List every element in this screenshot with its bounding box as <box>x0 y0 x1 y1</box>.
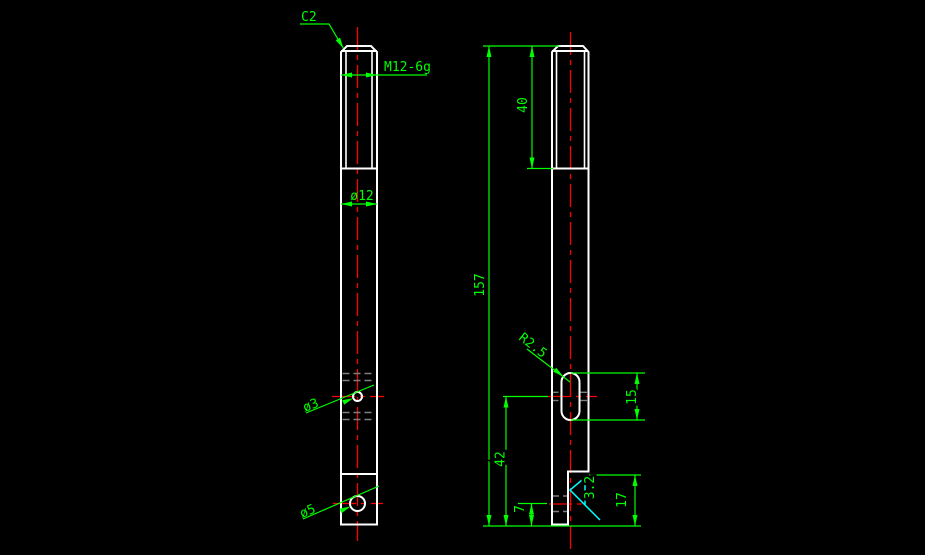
side-view <box>548 32 597 551</box>
cad-drawing-canvas[interactable]: C2 M12-6g ø12 ø3 ø5 <box>0 0 925 555</box>
small-hole-leader-arrow <box>342 398 353 405</box>
slot-length-arrow-bottom <box>635 409 640 420</box>
slot-length-arrow-top <box>635 373 640 384</box>
slot-radius-leader-arrow <box>553 368 563 377</box>
shaft-diameter-label: ø12 <box>350 189 373 204</box>
small-hole-label: ø3 <box>301 396 321 416</box>
slot-radius-callout: R2.5 <box>516 330 570 382</box>
slot-position-dimension: 42 <box>494 397 509 527</box>
slot-length-dimension: 15 <box>625 373 640 420</box>
thread-length-label: 40 <box>516 97 531 113</box>
chamfer-callout: C2 <box>300 10 344 49</box>
thread-dimension: M12-6g <box>341 60 431 78</box>
side-view-centerlines <box>548 32 597 551</box>
small-hole-callout: ø3 <box>301 385 374 416</box>
large-hole-label: ø5 <box>298 502 318 522</box>
shaft-diameter-dimension: ø12 <box>341 189 377 207</box>
hole-position-arrow-bottom <box>529 515 534 526</box>
thread-length-dimension: 40 <box>516 46 535 169</box>
overall-length-dimension: 157 <box>473 46 492 526</box>
cad-drawing: C2 M12-6g ø12 ø3 ø5 <box>0 0 925 555</box>
front-view-outline <box>341 46 377 525</box>
overall-length-arrow-top <box>487 46 492 57</box>
thread-length-arrow-bottom <box>530 158 535 169</box>
flat-length-dimension: 17 <box>615 475 638 526</box>
slot-radius-label: R2.5 <box>516 330 550 361</box>
front-view <box>332 27 384 541</box>
chamfer-label: C2 <box>301 10 317 25</box>
hole-position-arrow-top <box>529 504 534 515</box>
dimensions: C2 M12-6g ø12 ø3 ø5 <box>298 10 645 526</box>
overall-length-arrow-bottom <box>487 515 492 526</box>
thread-label: M12-6g <box>384 60 431 75</box>
slot-position-label: 42 <box>494 451 509 467</box>
overall-length-label: 157 <box>473 273 488 296</box>
chamfer-leader-arrow <box>336 38 344 49</box>
surface-roughness-label: 3.2 <box>583 476 598 499</box>
thread-length-arrow-top <box>530 46 535 57</box>
hole-position-dimension: 7 <box>513 504 534 527</box>
large-hole-callout: ø5 <box>298 486 379 522</box>
slot-length-label: 15 <box>625 389 640 405</box>
surface-finish-symbol: 3.2 <box>570 476 600 520</box>
flat-length-arrow-bottom <box>633 515 638 526</box>
chamfer-leader-line <box>300 24 344 49</box>
slot-position-arrow-top <box>504 397 509 408</box>
flat-length-arrow-top <box>633 475 638 486</box>
hole-position-label: 7 <box>513 505 528 513</box>
flat-length-label: 17 <box>615 492 630 508</box>
slot-position-arrow-bottom <box>504 515 509 526</box>
